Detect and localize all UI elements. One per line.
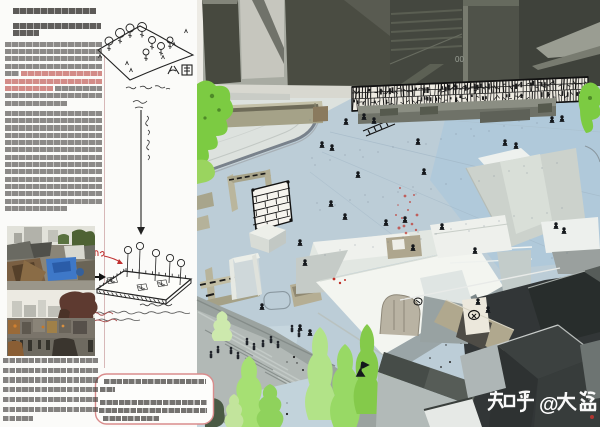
svg-text:00: 00 (455, 55, 464, 64)
svg-text:@: @ (539, 394, 559, 416)
